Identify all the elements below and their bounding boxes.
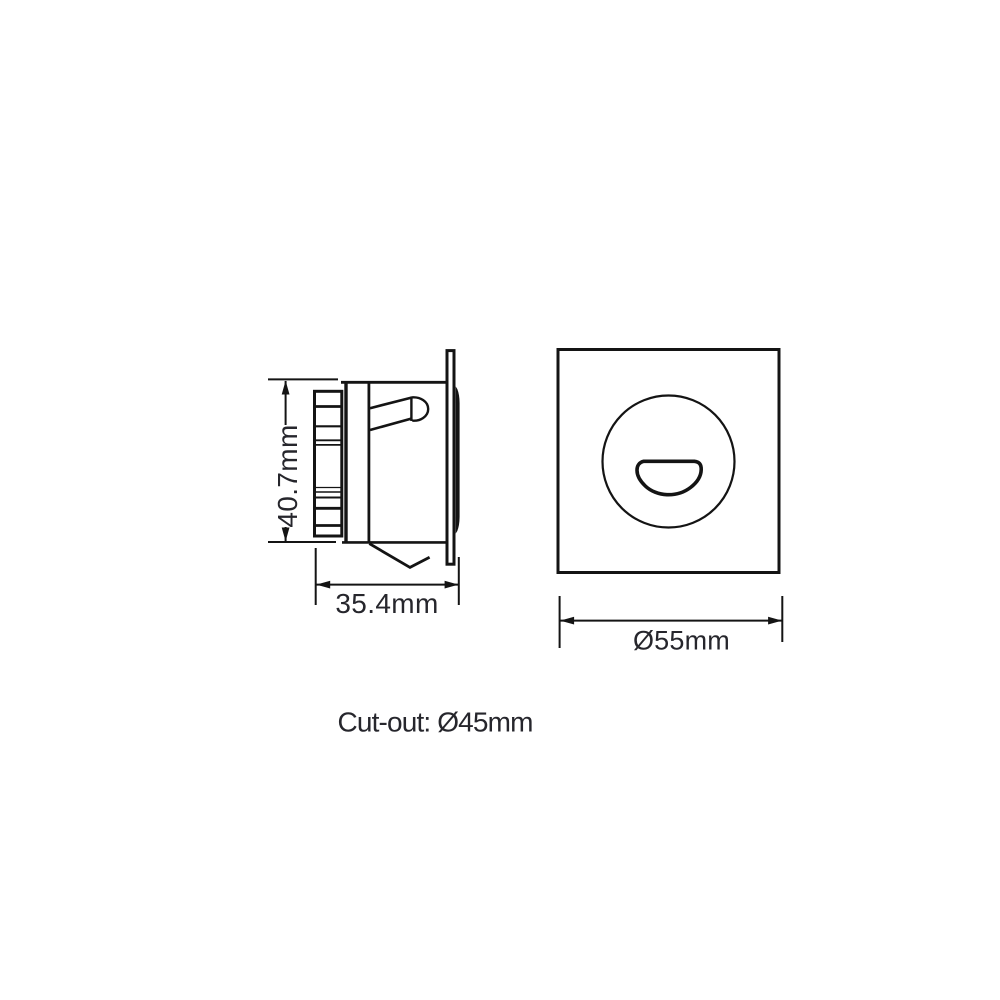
svg-text:Ø55mm: Ø55mm (633, 626, 730, 656)
svg-text:40.7mm: 40.7mm (272, 424, 303, 527)
svg-text:35.4mm: 35.4mm (335, 588, 438, 619)
svg-text:Cut-out: Ø45mm: Cut-out: Ø45mm (338, 707, 533, 738)
